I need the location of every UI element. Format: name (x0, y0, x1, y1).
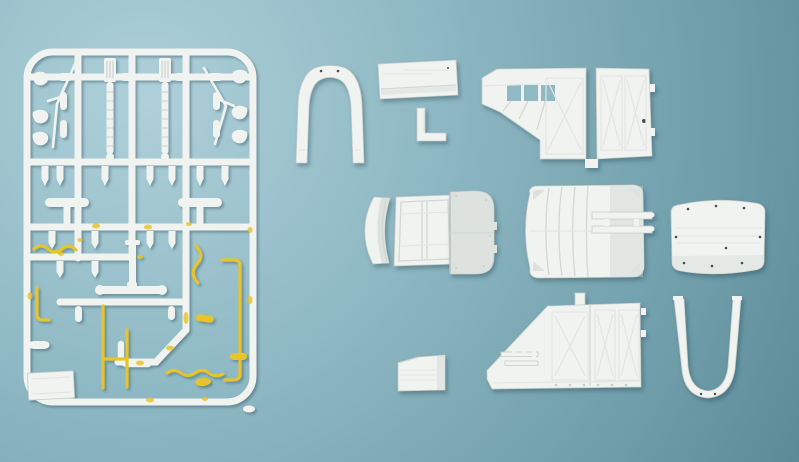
loose-pellet (243, 406, 255, 413)
parts-sprue (27, 52, 253, 403)
photo-stage (0, 0, 799, 462)
leaf-spring-part (159, 58, 171, 161)
gear-lever-part (125, 240, 140, 288)
body-side-panel-right (482, 68, 655, 168)
small-ribbed-panel (398, 355, 445, 391)
axle-part (95, 282, 167, 295)
curved-side-skirt (365, 197, 390, 264)
standing-roof-panel (450, 191, 497, 274)
flat-plate-part (27, 371, 74, 400)
capsule-parts (58, 73, 223, 138)
u-frame (673, 296, 742, 398)
l-bracket (417, 108, 446, 141)
flat-floor-panel (378, 60, 458, 99)
model-kit-photo (0, 0, 799, 462)
capsule-part (30, 341, 48, 349)
rear-doors-panel (394, 195, 454, 266)
flat-roof-panel (671, 200, 765, 274)
hook-parts (33, 72, 49, 146)
leaf-spring-part (104, 58, 116, 161)
elbow-pipe-part (121, 344, 148, 364)
chassis-floor-pan (526, 185, 655, 278)
door-arch-frame (296, 66, 364, 164)
body-side-panel-left (487, 293, 646, 389)
